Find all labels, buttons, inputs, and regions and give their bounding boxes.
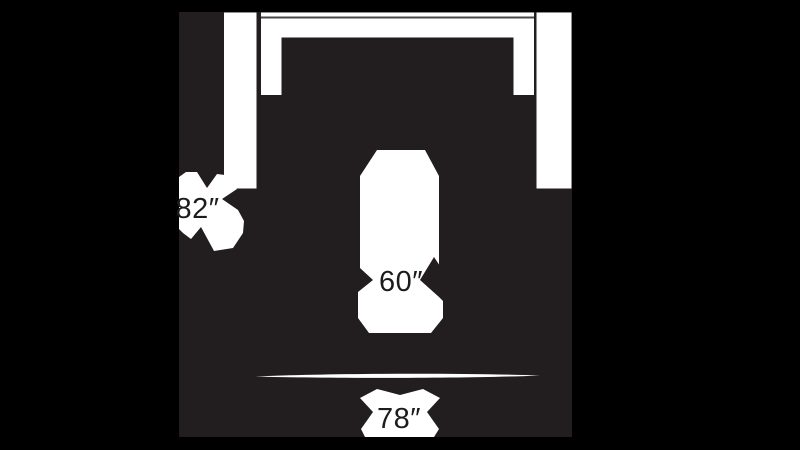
back-top-strip: [261, 13, 534, 17]
dimension-label-left: 82″: [176, 193, 220, 225]
right-arm-bar: [537, 13, 572, 189]
left-arm-bar: [224, 13, 257, 189]
center-dimension-ribbon: 60″: [358, 150, 452, 333]
dimension-label-center: 60″: [379, 266, 423, 298]
diagram-canvas: 60″ 82″ 78″: [0, 0, 800, 450]
dimensions-diagram: 60″ 82″ 78″: [0, 0, 800, 450]
dimension-label-bottom: 78″: [377, 403, 421, 435]
center-ribbon-shape: [358, 150, 443, 333]
back-seam-line: [261, 17, 534, 19]
